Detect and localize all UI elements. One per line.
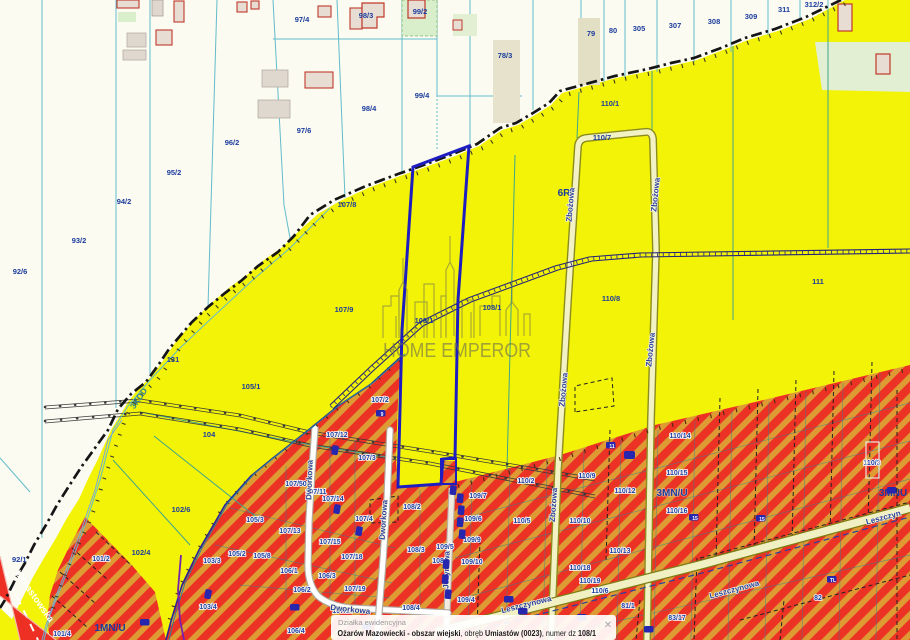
svg-text:HOME EMPEROR: HOME EMPEROR xyxy=(383,340,531,362)
svg-text:311: 311 xyxy=(778,5,790,14)
svg-text:111: 111 xyxy=(812,277,824,286)
svg-text:11: 11 xyxy=(609,444,615,450)
svg-text:96/2: 96/2 xyxy=(225,138,240,147)
svg-text:92/1: 92/1 xyxy=(12,555,27,564)
svg-text:82: 82 xyxy=(814,595,822,602)
svg-text:109/9: 109/9 xyxy=(463,537,481,544)
svg-text:3MN/U: 3MN/U xyxy=(656,488,687,499)
svg-text:99/4: 99/4 xyxy=(415,91,430,100)
svg-text:110/1: 110/1 xyxy=(601,99,619,108)
svg-text:106/1: 106/1 xyxy=(280,568,298,575)
svg-text:92/6: 92/6 xyxy=(13,267,28,276)
svg-text:103/4: 103/4 xyxy=(199,604,217,611)
svg-text:110/18: 110/18 xyxy=(569,565,590,572)
svg-text:15: 15 xyxy=(692,516,698,522)
svg-text:109/4: 109/4 xyxy=(457,597,475,604)
svg-text:102/4: 102/4 xyxy=(132,548,152,557)
svg-text:109/5: 109/5 xyxy=(436,544,454,551)
svg-text:307: 307 xyxy=(669,21,682,30)
svg-text:103/3: 103/3 xyxy=(203,558,221,565)
svg-text:TL: TL xyxy=(830,578,836,584)
svg-text:106/4: 106/4 xyxy=(287,628,305,635)
svg-text:Ożarów Mazowiecki - obszar wie: Ożarów Mazowiecki - obszar wiejski, obrę… xyxy=(338,629,597,639)
svg-text:Działka ewidencyjna: Działka ewidencyjna xyxy=(338,618,407,627)
svg-text:107/9: 107/9 xyxy=(335,305,354,314)
svg-text:110/19: 110/19 xyxy=(579,578,600,585)
svg-text:107/2: 107/2 xyxy=(371,397,389,404)
svg-text:109/6: 109/6 xyxy=(464,516,482,523)
svg-text:110/12: 110/12 xyxy=(614,488,635,495)
svg-text:102/6: 102/6 xyxy=(172,505,191,514)
svg-text:108/2: 108/2 xyxy=(403,504,421,511)
svg-text:110/14: 110/14 xyxy=(669,433,690,440)
svg-text:131: 131 xyxy=(167,355,180,364)
svg-text:✕: ✕ xyxy=(604,620,612,631)
svg-text:1MN/U: 1MN/U xyxy=(94,623,125,634)
svg-text:107/8: 107/8 xyxy=(338,200,357,209)
svg-text:105/2: 105/2 xyxy=(228,551,246,558)
svg-text:Dworkowa: Dworkowa xyxy=(304,459,314,500)
svg-text:78/3: 78/3 xyxy=(498,51,513,60)
svg-text:110/6: 110/6 xyxy=(591,588,608,595)
svg-text:15: 15 xyxy=(759,517,765,523)
svg-text:107/3: 107/3 xyxy=(358,455,376,462)
svg-text:104: 104 xyxy=(203,430,216,439)
svg-text:110/7: 110/7 xyxy=(593,133,611,142)
svg-text:101/4: 101/4 xyxy=(53,631,71,638)
svg-text:93/2: 93/2 xyxy=(72,236,87,245)
svg-text:99/2: 99/2 xyxy=(413,7,428,16)
svg-text:110/13: 110/13 xyxy=(609,548,630,555)
svg-text:97/6: 97/6 xyxy=(297,126,312,135)
svg-text:98/4: 98/4 xyxy=(362,104,377,113)
svg-text:106/3: 106/3 xyxy=(318,573,336,580)
svg-text:106/2: 106/2 xyxy=(293,587,311,594)
svg-text:107/4: 107/4 xyxy=(355,516,373,523)
svg-text:79: 79 xyxy=(587,29,595,38)
svg-text:309: 309 xyxy=(745,12,758,21)
svg-text:107/15: 107/15 xyxy=(319,539,341,546)
svg-text:81/1: 81/1 xyxy=(621,603,635,610)
svg-text:110/15: 110/15 xyxy=(666,470,687,477)
svg-text:110/10: 110/10 xyxy=(569,518,590,525)
svg-text:9: 9 xyxy=(381,412,384,418)
svg-text:308: 308 xyxy=(708,17,721,26)
svg-text:105/1: 105/1 xyxy=(242,382,261,391)
svg-text:305: 305 xyxy=(633,24,646,33)
svg-text:107/19: 107/19 xyxy=(344,586,366,593)
svg-text:107/18: 107/18 xyxy=(341,554,363,561)
svg-text:94/2: 94/2 xyxy=(117,197,132,206)
svg-text:108/1: 108/1 xyxy=(415,316,434,325)
svg-text:107/14: 107/14 xyxy=(322,496,344,503)
svg-text:98/3: 98/3 xyxy=(359,11,374,20)
svg-text:80: 80 xyxy=(609,26,617,35)
svg-text:97/4: 97/4 xyxy=(295,15,310,24)
svg-text:108/3: 108/3 xyxy=(407,547,425,554)
svg-text:105/8: 105/8 xyxy=(253,553,271,560)
svg-text:108/1: 108/1 xyxy=(483,303,502,312)
svg-text:109/10: 109/10 xyxy=(461,559,483,566)
svg-text:108/4: 108/4 xyxy=(402,605,420,612)
svg-text:107/50: 107/50 xyxy=(285,481,307,488)
svg-text:95/2: 95/2 xyxy=(167,168,182,177)
svg-text:110/9: 110/9 xyxy=(578,473,595,480)
svg-text:110/16: 110/16 xyxy=(666,508,687,515)
svg-text:107/12: 107/12 xyxy=(326,432,348,439)
svg-text:101/2: 101/2 xyxy=(92,556,110,563)
svg-text:83/17: 83/17 xyxy=(668,615,686,622)
svg-text:109/7: 109/7 xyxy=(469,493,487,500)
svg-text:110/8: 110/8 xyxy=(602,294,620,303)
svg-text:110/2: 110/2 xyxy=(517,478,534,485)
svg-text:105/3: 105/3 xyxy=(246,517,264,524)
svg-text:107/13: 107/13 xyxy=(279,528,301,535)
svg-text:312/2: 312/2 xyxy=(805,0,824,9)
svg-text:110/5: 110/5 xyxy=(513,518,530,525)
